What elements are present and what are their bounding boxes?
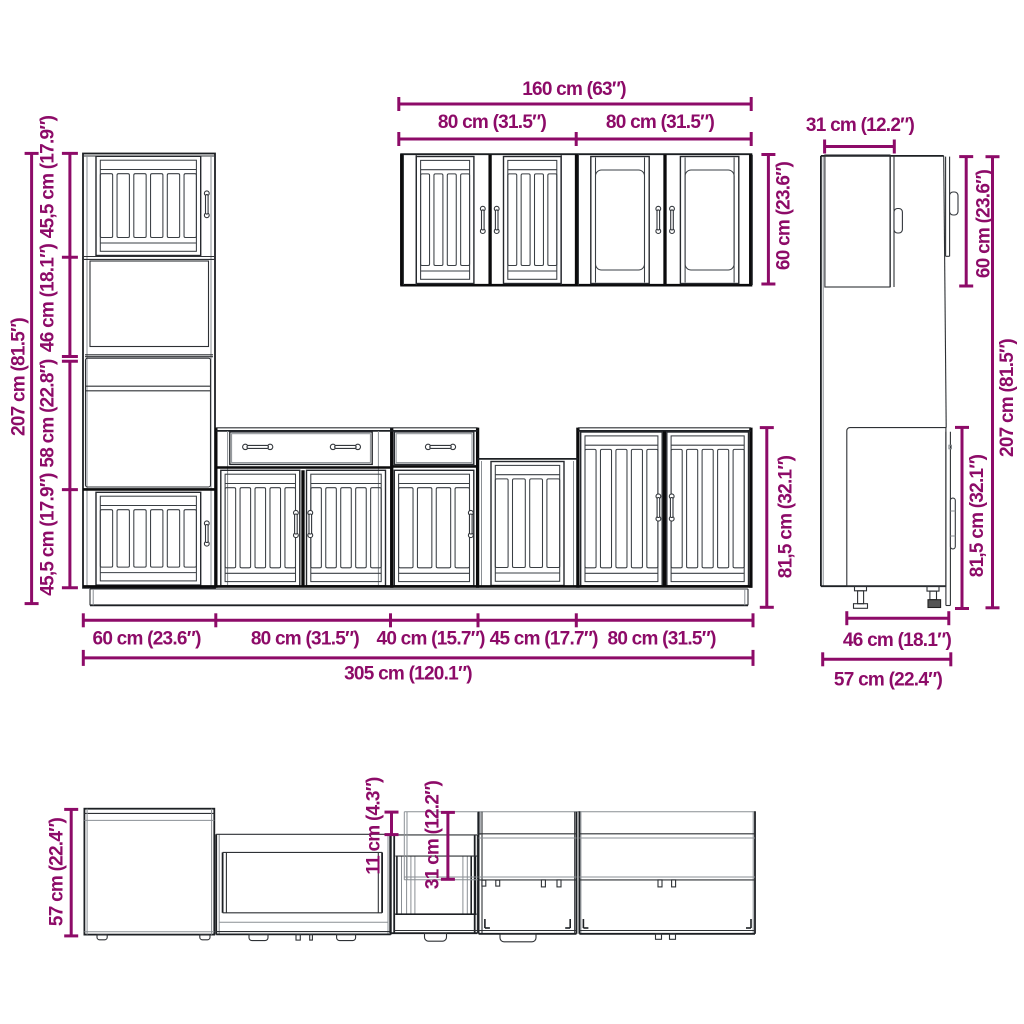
svg-text:80 cm (31.5″): 80 cm (31.5″) bbox=[438, 112, 547, 133]
svg-text:45,5 cm (17.9″): 45,5 cm (17.9″) bbox=[38, 473, 59, 596]
svg-text:81,5 cm (32.1″): 81,5 cm (32.1″) bbox=[967, 454, 988, 577]
svg-text:46 cm (18.1″): 46 cm (18.1″) bbox=[38, 244, 59, 353]
svg-text:31 cm (12.2″): 31 cm (12.2″) bbox=[423, 781, 444, 890]
svg-text:40 cm (15.7″): 40 cm (15.7″) bbox=[377, 629, 486, 650]
svg-text:81,5 cm (32.1″): 81,5 cm (32.1″) bbox=[776, 455, 797, 578]
svg-text:57 cm (22.4″): 57 cm (22.4″) bbox=[834, 670, 943, 691]
svg-text:58 cm (22.8″): 58 cm (22.8″) bbox=[38, 359, 59, 468]
svg-text:207 cm (81.5″): 207 cm (81.5″) bbox=[997, 339, 1018, 457]
svg-text:31 cm (12.2″): 31 cm (12.2″) bbox=[806, 115, 915, 136]
svg-text:60 cm (23.6″): 60 cm (23.6″) bbox=[93, 629, 202, 650]
svg-text:57 cm (22.4″): 57 cm (22.4″) bbox=[47, 818, 68, 927]
svg-text:80 cm (31.5″): 80 cm (31.5″) bbox=[608, 629, 717, 650]
svg-text:11 cm (4.3″): 11 cm (4.3″) bbox=[364, 777, 385, 875]
svg-text:305 cm (120.1″): 305 cm (120.1″) bbox=[344, 663, 472, 684]
svg-text:207 cm (81.5″): 207 cm (81.5″) bbox=[9, 318, 30, 436]
svg-text:160 cm (63″): 160 cm (63″) bbox=[522, 79, 626, 100]
svg-text:80 cm (31.5″): 80 cm (31.5″) bbox=[606, 112, 715, 133]
svg-text:60 cm (23.6″): 60 cm (23.6″) bbox=[774, 162, 795, 271]
svg-text:46 cm (18.1″): 46 cm (18.1″) bbox=[843, 630, 952, 651]
svg-text:45 cm (17.7″): 45 cm (17.7″) bbox=[490, 629, 599, 650]
svg-text:80 cm (31.5″): 80 cm (31.5″) bbox=[251, 629, 360, 650]
svg-text:45,5 cm (17.9″): 45,5 cm (17.9″) bbox=[38, 115, 59, 238]
